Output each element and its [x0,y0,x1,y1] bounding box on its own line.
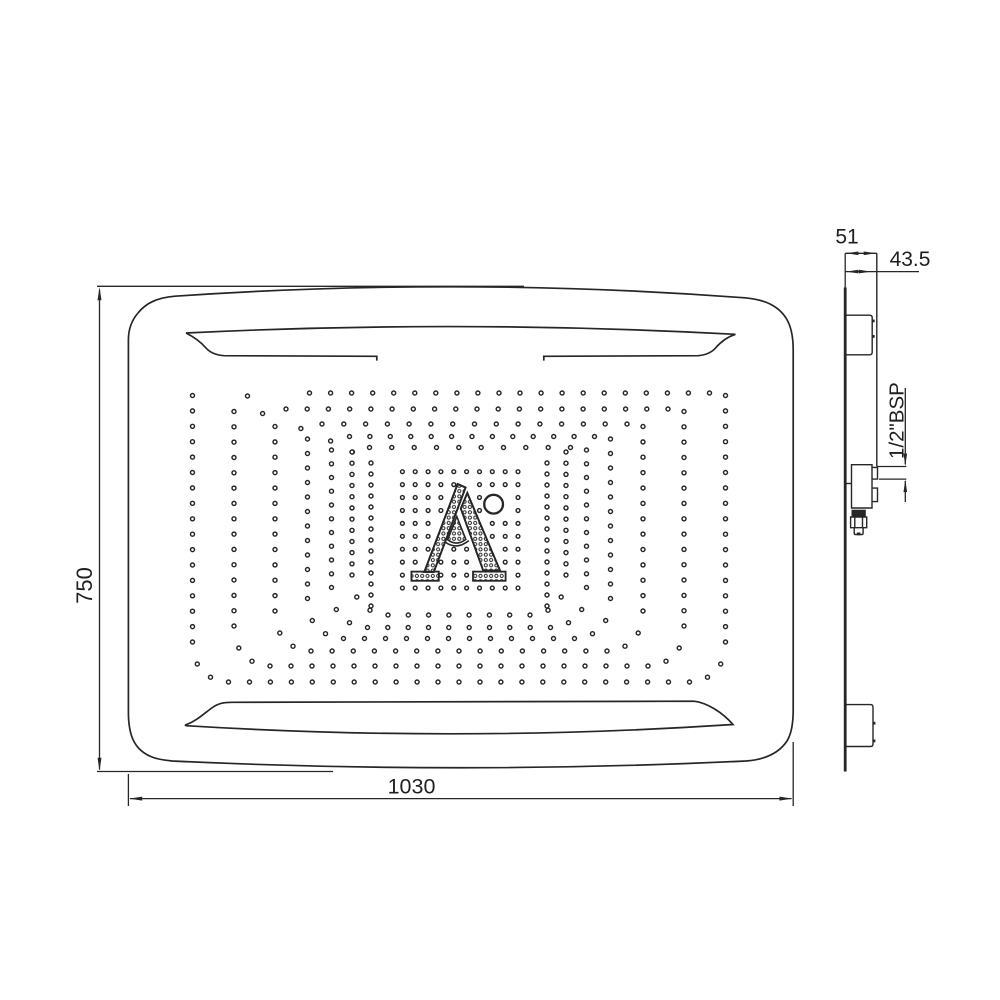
svg-text:43.5: 43.5 [890,248,931,271]
svg-text:1030: 1030 [388,775,436,799]
svg-text:1/2"BSP: 1/2"BSP [886,382,909,459]
svg-text:51: 51 [835,226,858,249]
svg-text:750: 750 [72,567,97,604]
